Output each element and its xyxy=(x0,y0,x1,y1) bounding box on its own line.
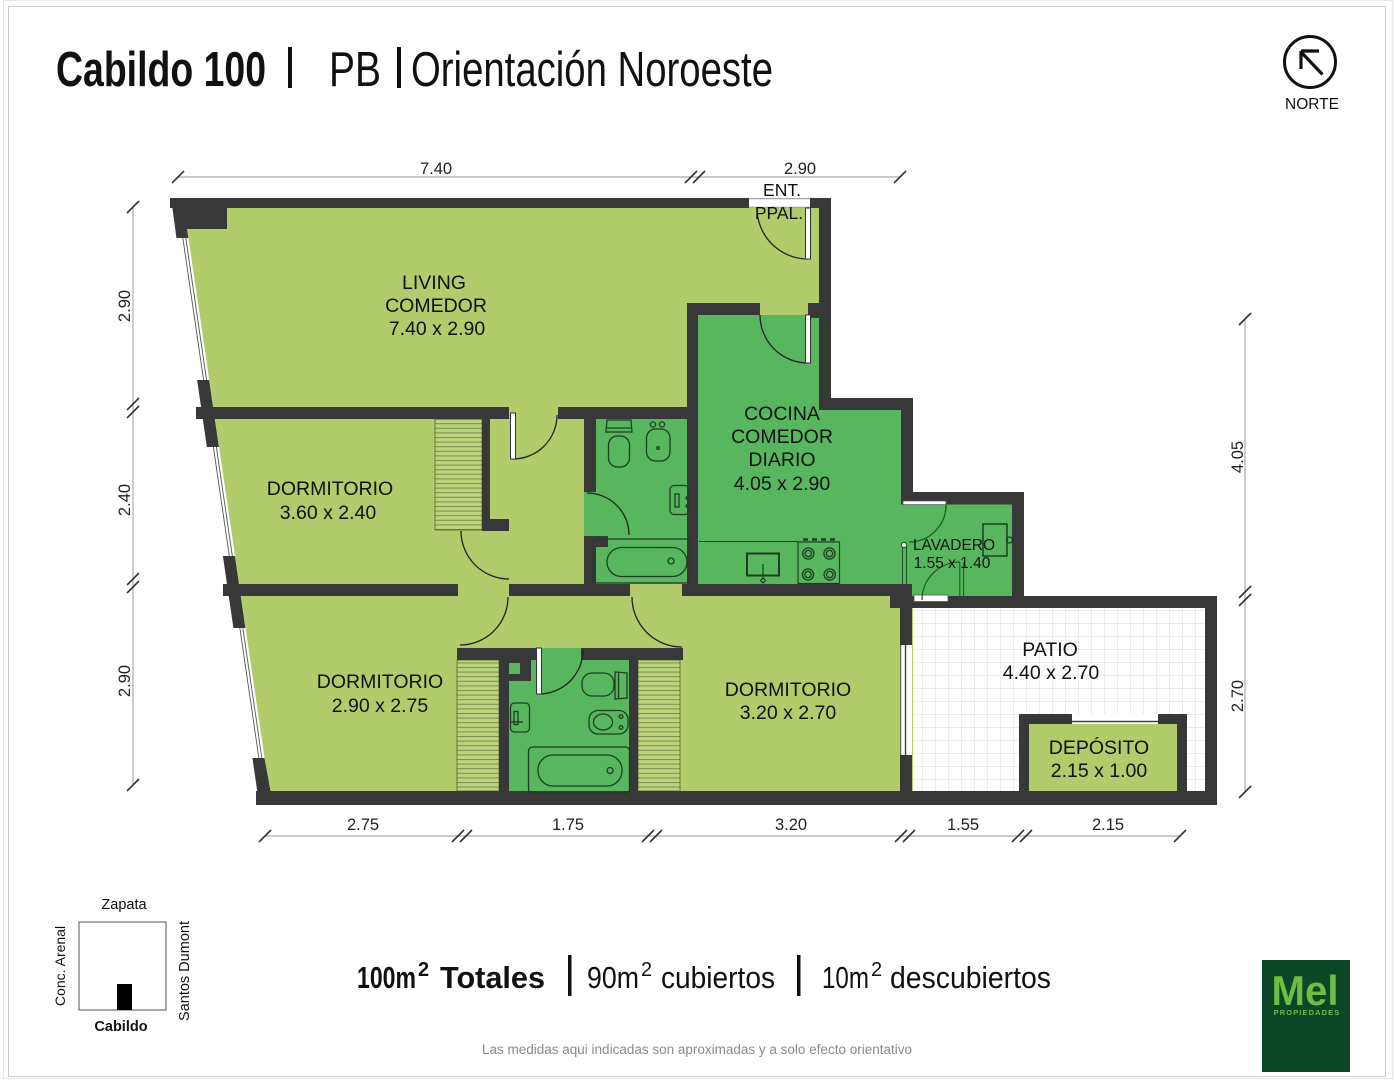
svg-text:DEPÓSITO: DEPÓSITO xyxy=(1049,736,1149,759)
svg-text:2: 2 xyxy=(418,959,429,981)
svg-text:cubiertos: cubiertos xyxy=(661,960,775,995)
svg-text:Mel: Mel xyxy=(1272,967,1339,1014)
svg-text:7.40: 7.40 xyxy=(420,160,452,178)
svg-text:2: 2 xyxy=(641,959,652,981)
svg-text:DORMITORIO: DORMITORIO xyxy=(267,478,393,500)
svg-text:COCINA: COCINA xyxy=(744,403,820,425)
svg-text:2.15: 2.15 xyxy=(1092,816,1124,834)
svg-text:LAVADERO: LAVADERO xyxy=(913,537,995,554)
svg-text:2.90 x 2.75: 2.90 x 2.75 xyxy=(332,695,429,717)
svg-text:4.05 x 2.90: 4.05 x 2.90 xyxy=(734,473,831,495)
svg-text:LIVING: LIVING xyxy=(402,272,466,294)
svg-text:DIARIO: DIARIO xyxy=(748,449,815,471)
svg-text:7.40 x 2.90: 7.40 x 2.90 xyxy=(389,318,486,340)
svg-text:2.15 x 1.00: 2.15 x 1.00 xyxy=(1051,760,1148,782)
svg-text:descubiertos: descubiertos xyxy=(890,960,1051,995)
svg-text:2.90: 2.90 xyxy=(784,160,816,178)
svg-text:Conc. Arenal: Conc. Arenal xyxy=(52,926,68,1006)
svg-text:PROPIEDADES: PROPIEDADES xyxy=(1274,1008,1341,1017)
svg-text:Zapata: Zapata xyxy=(101,897,147,913)
svg-text:2.70: 2.70 xyxy=(1229,680,1247,712)
svg-text:3.60 x 2.40: 3.60 x 2.40 xyxy=(280,502,377,524)
svg-text:Cabildo 100: Cabildo 100 xyxy=(56,43,266,97)
svg-text:2: 2 xyxy=(871,959,882,981)
svg-text:90m: 90m xyxy=(587,960,639,995)
svg-text:PATIO: PATIO xyxy=(1022,639,1078,661)
svg-text:10m: 10m xyxy=(822,960,869,995)
svg-text:1.55: 1.55 xyxy=(947,816,979,834)
svg-text:Santos Dumont: Santos Dumont xyxy=(177,921,193,1021)
svg-text:2.90: 2.90 xyxy=(116,665,134,697)
svg-text:Totales: Totales xyxy=(440,960,545,995)
svg-text:COMEDOR: COMEDOR xyxy=(385,295,487,317)
svg-text:PB: PB xyxy=(329,43,381,97)
svg-text:PPAL.: PPAL. xyxy=(755,203,803,223)
svg-text:DORMITORIO: DORMITORIO xyxy=(317,671,443,693)
svg-text:COMEDOR: COMEDOR xyxy=(731,426,833,448)
svg-text:Cabildo: Cabildo xyxy=(94,1019,147,1035)
svg-text:ENT.: ENT. xyxy=(763,180,801,200)
svg-text:4.40 x 2.70: 4.40 x 2.70 xyxy=(1003,662,1100,684)
svg-text:NORTE: NORTE xyxy=(1285,96,1339,113)
svg-text:DORMITORIO: DORMITORIO xyxy=(725,679,851,701)
svg-text:1.75: 1.75 xyxy=(552,816,584,834)
svg-text:2.90: 2.90 xyxy=(116,290,134,322)
svg-text:3.20: 3.20 xyxy=(775,816,807,834)
svg-text:1.55 x 1.40: 1.55 x 1.40 xyxy=(914,555,991,572)
svg-text:100m: 100m xyxy=(357,960,416,995)
svg-text:2.40: 2.40 xyxy=(116,484,134,516)
svg-text:4.05: 4.05 xyxy=(1229,441,1247,473)
svg-text:3.20 x 2.70: 3.20 x 2.70 xyxy=(740,702,837,724)
svg-text:2.75: 2.75 xyxy=(347,816,379,834)
svg-text:Orientación Noroeste: Orientación Noroeste xyxy=(411,43,773,97)
svg-text:Las medidas aqui indicadas son: Las medidas aqui indicadas son aproximad… xyxy=(482,1042,912,1057)
